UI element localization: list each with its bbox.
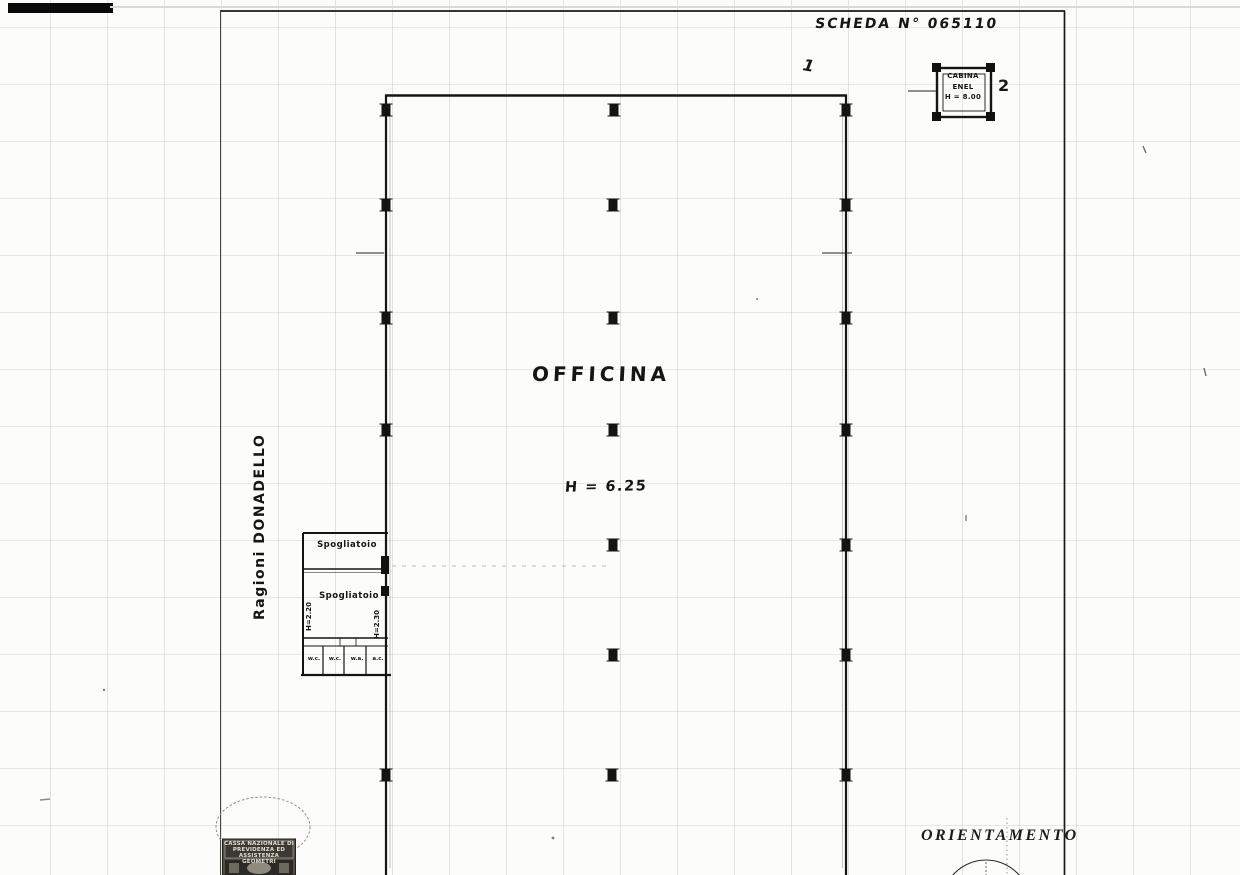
room-label-officina: OFFICINA [531, 362, 670, 386]
orientamento-label: ORIENTAMENTO [921, 827, 1079, 845]
cell-label-wa: w.a. [347, 656, 367, 662]
floor-plan-drawing [0, 0, 1240, 875]
cell-label-wc-1: w.c. [304, 656, 324, 662]
interior-columns [606, 104, 621, 781]
cell-label-wc-2: w.c. [325, 656, 345, 662]
cabina-line-3: H = 8.00 [939, 92, 987, 103]
sheet-border [220, 11, 1065, 875]
stamp-line-2: PREVIDENZA ED ASSISTENZA [224, 848, 294, 860]
cassa-geometri-stamp-text: CASSA NAZIONALE DI PREVIDENZA ED ASSISTE… [224, 842, 294, 866]
annex-height-label-220: H=2.20 [305, 602, 313, 631]
scheda-number-label: SCHEDA N° 065110 [814, 16, 999, 32]
room-label-spogliatoio-1: Spogliatoio [314, 540, 380, 550]
building-height-label: H = 6.25 [564, 478, 647, 495]
cabina-line-2: ENEL [939, 82, 987, 93]
room-label-spogliatoio-2: Spogliatoio [316, 591, 382, 601]
stamp-line-3: GEOMETRI [224, 860, 294, 866]
cabina-line-1: CABINA [939, 71, 987, 82]
owner-label-ragioni-donadello: Ragioni DONADELLO [252, 434, 268, 620]
annex-height-label-230: H=2.30 [373, 610, 381, 639]
cabina-marker-2: 2 [998, 76, 1009, 95]
annex-walls [301, 533, 612, 675]
scanned-floor-plan-sheet: SCHEDA N° 065110 1 2 CABINA ENEL H = 8.0… [0, 0, 1240, 875]
cabina-enel-label: CABINA ENEL H = 8.00 [939, 71, 987, 103]
cell-label-ac: a.c. [368, 656, 388, 662]
